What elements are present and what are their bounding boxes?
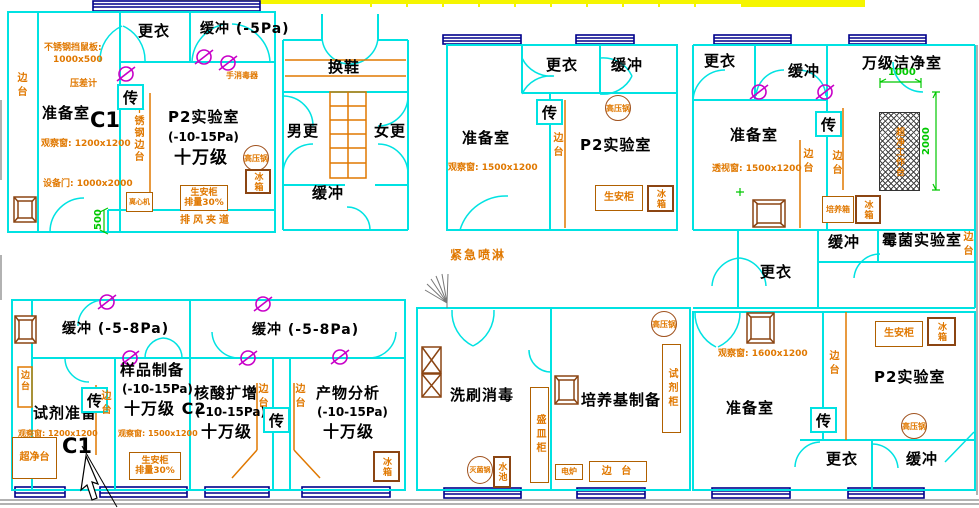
fridge-tr-label: 冰箱 (862, 200, 875, 220)
room-label-buffer-tm: 缓冲 (611, 58, 643, 73)
centrifuge-tl: 离心机 (126, 192, 153, 212)
autoclave-bm: 高压锅 (651, 311, 677, 337)
side-bench-bc-2: 边台 (293, 383, 303, 425)
wash-sink: 水池 (493, 456, 511, 488)
note-pressure-gauge: 压差计 (70, 79, 97, 90)
fridge-tr: 冰箱 (855, 195, 881, 224)
note-rat-guard-size: 1000x500 (53, 55, 103, 66)
bsc-tl-line2: 排量30% (184, 198, 224, 208)
fridge-bc-label: 冰箱 (380, 457, 393, 477)
room-label-nucleic: 核酸扩增 (194, 386, 258, 401)
autoclave-tl: 高压锅 (243, 145, 269, 171)
transfer-window-tm: 传 (536, 99, 563, 125)
room-label-buffer-bc: 缓冲 (-5-8Pa) (252, 323, 359, 337)
note-window-tm: 观察窗: 1500x1200 (448, 163, 538, 174)
note-rat-guard: 不锈钢挡鼠板: (44, 43, 102, 54)
room-code-c1-bl: C1 (62, 436, 92, 457)
electric-stove: 电炉 (555, 464, 583, 480)
side-bench-bm-label: 边 台 (602, 466, 634, 478)
emergency-shower-label: 紧急喷淋 (450, 248, 506, 262)
fridge-tl: 冰箱 (245, 169, 271, 194)
dish-cabinet-label: 盛皿柜 (532, 414, 547, 456)
fridge-br: 冰箱 (927, 317, 956, 346)
dim-1000: 1000 (888, 68, 916, 78)
exhaust-duct-label: 排风夹道 (180, 215, 232, 227)
room-label-p2-br: P2实验室 (874, 370, 945, 385)
side-bench-tm: 边台 (551, 132, 561, 180)
bsc-tm-label: 生安柜 (604, 192, 634, 204)
dim-2000: 2000 (922, 127, 932, 155)
bsc-br-label: 生安柜 (884, 328, 914, 340)
transfer-window-br: 传 (810, 407, 837, 433)
room-label-dressing-tl: 更衣 (138, 24, 170, 39)
room-label-buffer-tr: 缓冲 (788, 64, 820, 79)
room-label-female-change: 女更 (374, 124, 406, 139)
clean-bench-bl: 超净台 (12, 437, 57, 479)
note-window-tl: 观察窗: 1200x1200 (41, 139, 131, 150)
room-label-prep-tm: 准备室 (462, 131, 510, 146)
side-bench-bm: 边 台 (589, 461, 647, 482)
side-bench-bl-2: 边台 (99, 390, 109, 450)
lab-floorplan-canvas: 更衣 缓冲 (-5Pa) 不锈钢挡鼠板: 1000x500 压差计 准备室 C1… (0, 0, 979, 508)
room-label-prep-tl: 准备室 (42, 106, 90, 121)
room-label-buffer-br: 缓冲 (906, 452, 938, 467)
biosafety-cabinet-br: 生安柜 (875, 321, 923, 347)
clean-bench-bl-label: 超净台 (20, 452, 50, 464)
dim-500: 500 (94, 209, 104, 230)
room-label-p2-tl: P2实验室 (168, 110, 239, 125)
clean-workbench-tr: 超净工作台 (879, 112, 920, 191)
bsc-bl-line2: 排量30% (135, 466, 175, 476)
room-label-media-prep: 培养基制备 (581, 393, 661, 408)
transfer-window-tl: 传 (117, 84, 144, 110)
room-label-dressing-mr: 更衣 (760, 265, 792, 280)
side-bench-tl-left: 边台 (15, 72, 25, 157)
yellow-grid-strip (160, 0, 865, 7)
autoclave-br: 高压锅 (901, 413, 927, 439)
room-class-nucleic: 十万级 (201, 424, 252, 440)
fridge-tm: 冰箱 (647, 185, 674, 212)
biosafety-cabinet-tl: 生安柜 排量30% (180, 185, 228, 211)
side-bench-tr-2: 边台 (830, 150, 840, 198)
wash-sink-label: 水池 (496, 462, 509, 482)
fridge-tl-label: 冰箱 (252, 172, 265, 192)
autoclave-tm: 高压锅 (605, 95, 631, 121)
room-label-prep-tr: 准备室 (730, 128, 778, 143)
note-window-bl2: 观察窗: 1500x1200 (118, 429, 198, 439)
note-window-tr: 透视窗: 1500x1200 (712, 164, 802, 175)
room-class-product: 十万级 (323, 424, 374, 440)
biosafety-cabinet-bl: 生安柜 排量30% (129, 452, 181, 480)
incubator-tr: 培养箱 (822, 196, 854, 223)
room-label-p2-tm: P2实验室 (580, 138, 651, 153)
room-label-prep-br: 准备室 (726, 401, 774, 416)
clean-workbench-label: 超净工作台 (893, 127, 906, 177)
room-label-dressing-tm: 更衣 (546, 58, 578, 73)
note-window-br: 观察窗: 1600x1200 (718, 349, 808, 360)
fridge-tm-label: 冰箱 (654, 189, 667, 209)
room-class-p2-tl: 十万级 (174, 150, 228, 167)
room-pa-p2-tl: (-10-15Pa) (168, 131, 239, 143)
room-label-mold-lab: 霉菌实验室 (882, 233, 962, 248)
reagent-cabinet: 试剂柜 (662, 344, 681, 433)
room-code-c1-tl: C1 (90, 110, 120, 131)
side-bench-br: 边台 (827, 350, 837, 400)
dish-cabinet: 盛皿柜 (530, 387, 549, 483)
note-hand-sanitizer: 手消毒器 (226, 71, 258, 81)
electric-stove-label: 电炉 (561, 467, 577, 476)
locker-cabinet (330, 92, 366, 178)
biosafety-cabinet-tm: 生安柜 (595, 185, 643, 211)
room-label-dressing-tr: 更衣 (704, 54, 736, 69)
room-label-buffer-mr: 缓冲 (828, 235, 860, 250)
room-label-product: 产物分析 (316, 386, 380, 401)
side-bench-tr-1: 边台 (801, 148, 811, 200)
fridge-br-label: 冰箱 (935, 322, 948, 342)
bsc-bl-line1: 生安柜 (141, 456, 168, 466)
bsc-tl-line1: 生安柜 (190, 188, 217, 198)
note-equip-door-tl: 设备门: 1000x2000 (43, 179, 133, 190)
side-bench-bl-left: 边台 (19, 370, 28, 410)
room-label-dressing-br: 更衣 (826, 452, 858, 467)
room-label-sample-prep: 样品制备 (120, 363, 184, 378)
fridge-bc: 冰箱 (373, 451, 400, 482)
shower-spray-symbol (425, 274, 448, 308)
reagent-cabinet-label: 试剂柜 (664, 368, 679, 410)
room-label-shoe-change: 换鞋 (328, 60, 360, 75)
side-bench-tr-right: 边台 (961, 231, 971, 269)
ss-side-bench-tl: 不锈钢边台 (132, 103, 142, 203)
room-label-buffer-bl: 缓冲 (-5-8Pa) (62, 322, 169, 336)
sterilizer-pot: 灭菌锅 (467, 456, 493, 484)
transfer-window-bc: 传 (263, 407, 290, 433)
room-label-wash: 洗刷消毒 (450, 388, 514, 403)
room-label-buffer-tl: 缓冲 (-5Pa) (200, 22, 290, 36)
room-pa-product: (-10-15Pa) (317, 406, 388, 418)
room-label-male-change: 男更 (287, 124, 319, 139)
room-label-buffer-tc: 缓冲 (312, 186, 344, 201)
room-pa-sample: (-10-15Pa) (122, 383, 193, 395)
incubator-label: 培养箱 (826, 205, 850, 214)
transfer-window-tr: 传 (815, 111, 842, 137)
